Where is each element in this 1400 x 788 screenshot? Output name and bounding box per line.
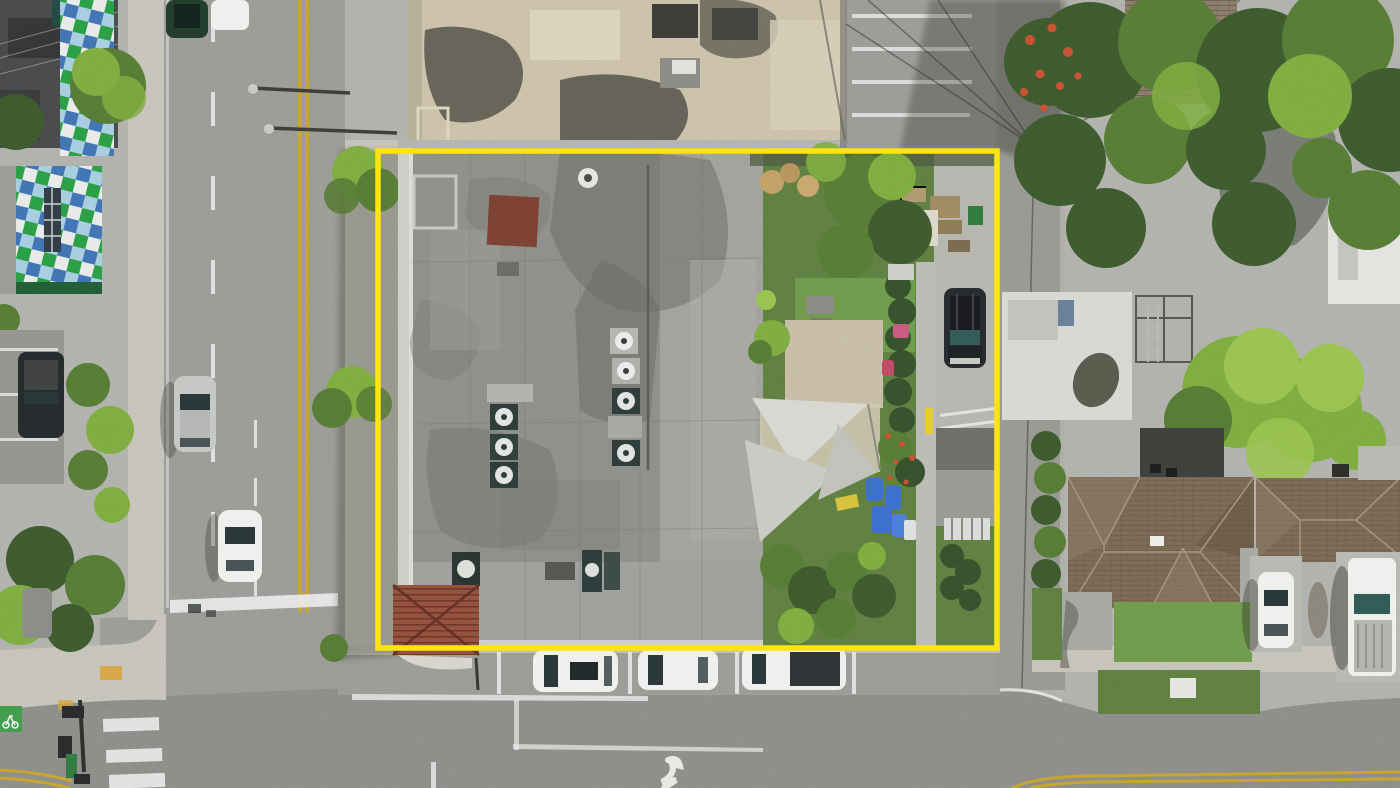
photo-grain [0, 0, 1400, 788]
aerial-photo-canvas [0, 0, 1400, 788]
aerial-photo [0, 0, 1400, 788]
